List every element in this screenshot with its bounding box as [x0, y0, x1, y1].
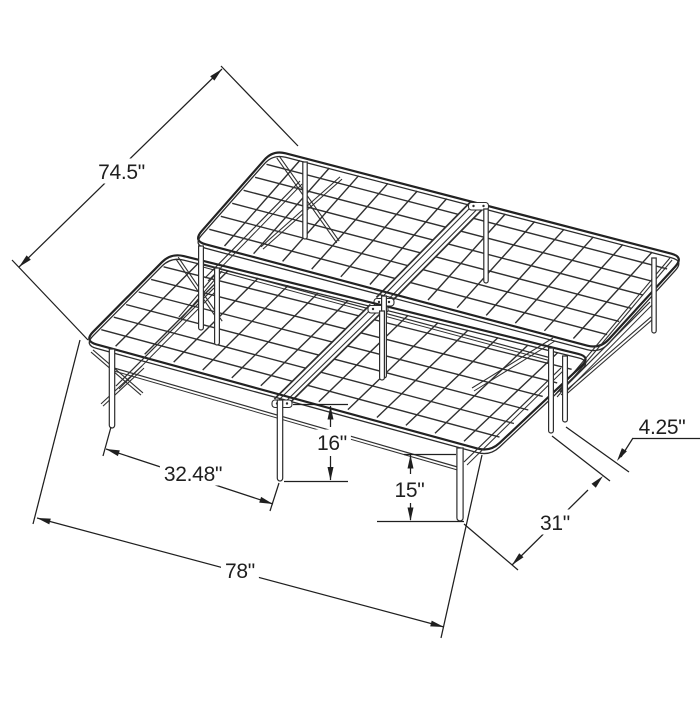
svg-text:16": 16" — [317, 432, 347, 455]
svg-text:4.25": 4.25" — [639, 416, 686, 439]
svg-text:31": 31" — [540, 512, 570, 535]
svg-text:15": 15" — [395, 479, 425, 502]
svg-text:78": 78" — [225, 560, 255, 583]
svg-text:32.48": 32.48" — [164, 463, 222, 486]
svg-text:74.5": 74.5" — [98, 161, 145, 184]
